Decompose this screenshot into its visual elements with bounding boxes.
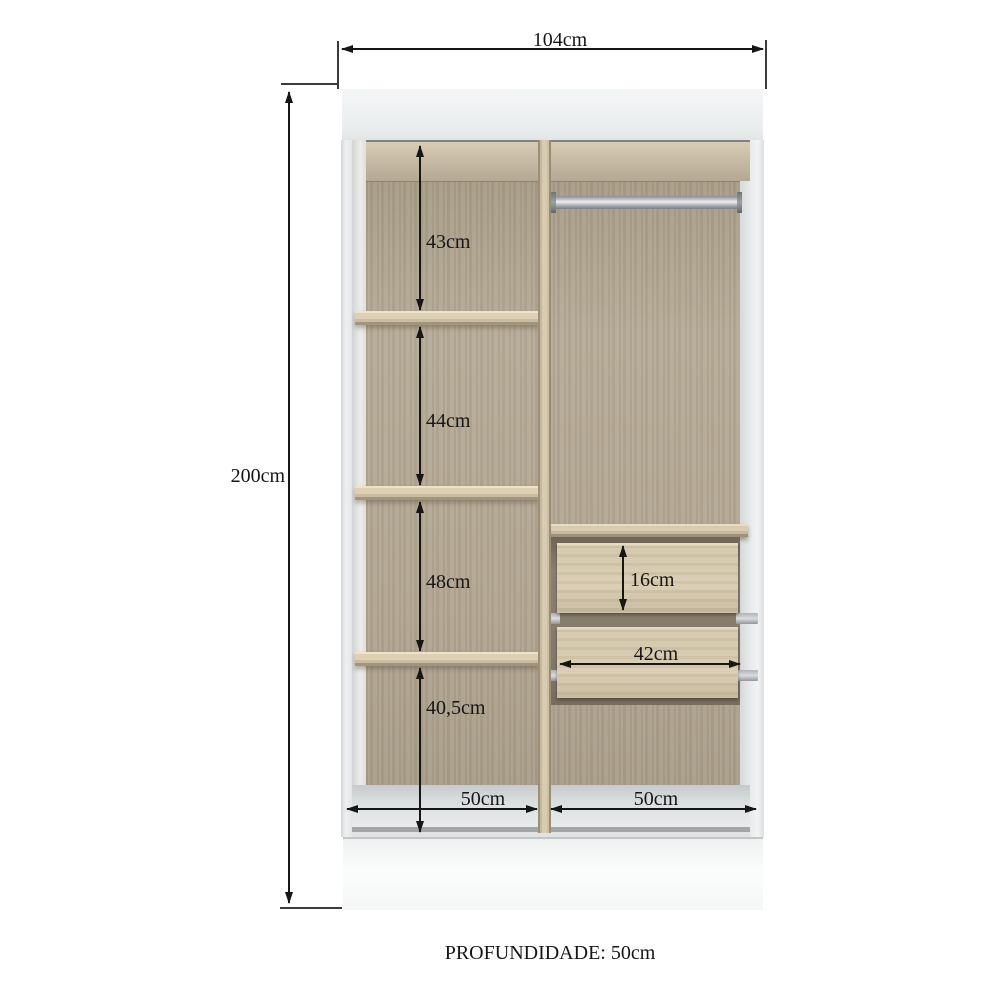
interior-ceiling-panel: [352, 140, 750, 183]
dim-arrow-section-44: [419, 327, 421, 485]
dim-label-left-column-width: 50cm: [433, 787, 533, 811]
cabinet-top-panel: [342, 89, 763, 142]
dim-arrow-section-43: [419, 146, 421, 310]
drawer-unit-top-shelf: [546, 524, 748, 537]
hanging-rod-left-bracket: [551, 192, 556, 213]
dim-witness-line: [765, 40, 767, 89]
wardrobe-dimension-diagram: 104cm 200cm 43cm 44cm 48cm 40,5cm 16cm 4…: [0, 0, 1000, 1000]
dim-label-overall-width: 104cm: [460, 28, 660, 52]
dim-arrow-overall-height: [288, 92, 290, 903]
interior-right-wall: [740, 181, 750, 837]
left-column-shelf-3: [355, 652, 538, 666]
dim-label-drawer-height: 16cm: [630, 568, 674, 592]
dim-label-section-44: 44cm: [426, 409, 470, 433]
center-divider-panel: [538, 140, 551, 833]
hanging-rod: [552, 196, 740, 209]
dim-arrow-section-48: [419, 502, 421, 651]
cabinet-right-side-panel: [750, 140, 764, 837]
dim-label-overall-height: 200cm: [213, 464, 285, 488]
drawer-slide-rail: [736, 613, 758, 624]
left-column-shelf-1: [355, 311, 538, 325]
drawer-slide-rail: [736, 670, 758, 681]
hanging-rod-right-bracket: [737, 192, 742, 213]
dim-label-right-column-width: 50cm: [606, 787, 706, 811]
dim-witness-line: [280, 907, 342, 909]
dim-label-section-40-5: 40,5cm: [426, 696, 485, 720]
dim-arrow-drawer-height: [622, 546, 624, 610]
dim-label-drawer-width: 42cm: [606, 642, 706, 666]
cabinet-left-side-panel: [341, 140, 352, 837]
dim-witness-line: [337, 41, 339, 89]
dim-witness-line: [281, 83, 338, 85]
dim-label-section-43: 43cm: [426, 230, 470, 254]
dim-label-section-48: 48cm: [426, 570, 470, 594]
floor-front-strip: [352, 832, 750, 837]
cabinet-base-plinth: [343, 837, 763, 910]
left-column-shelf-2: [355, 486, 538, 500]
depth-note: PROFUNDIDADE: 50cm: [300, 941, 800, 965]
